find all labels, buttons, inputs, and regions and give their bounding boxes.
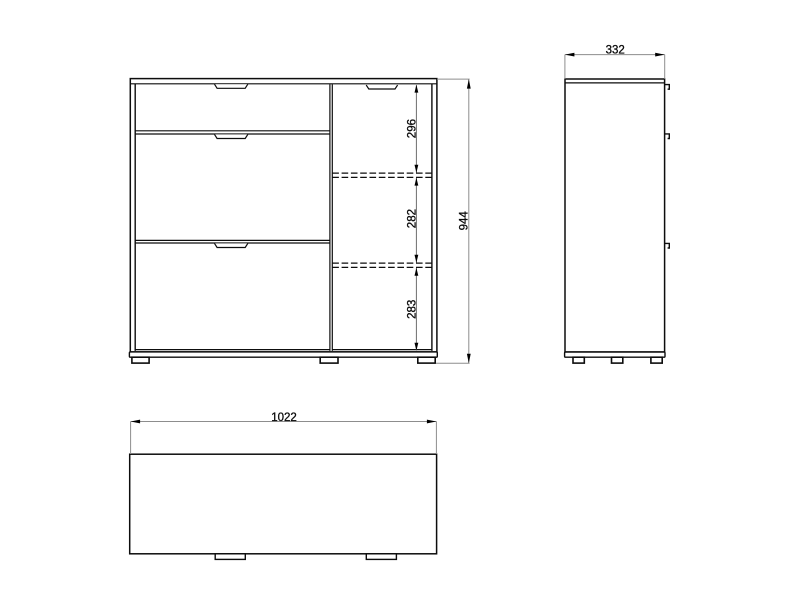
svg-text:296: 296 — [407, 119, 419, 138]
svg-text:1022: 1022 — [271, 412, 297, 424]
svg-text:332: 332 — [606, 44, 625, 56]
svg-text:944: 944 — [458, 211, 470, 231]
svg-text:283: 283 — [407, 300, 419, 319]
svg-text:282: 282 — [407, 209, 419, 228]
